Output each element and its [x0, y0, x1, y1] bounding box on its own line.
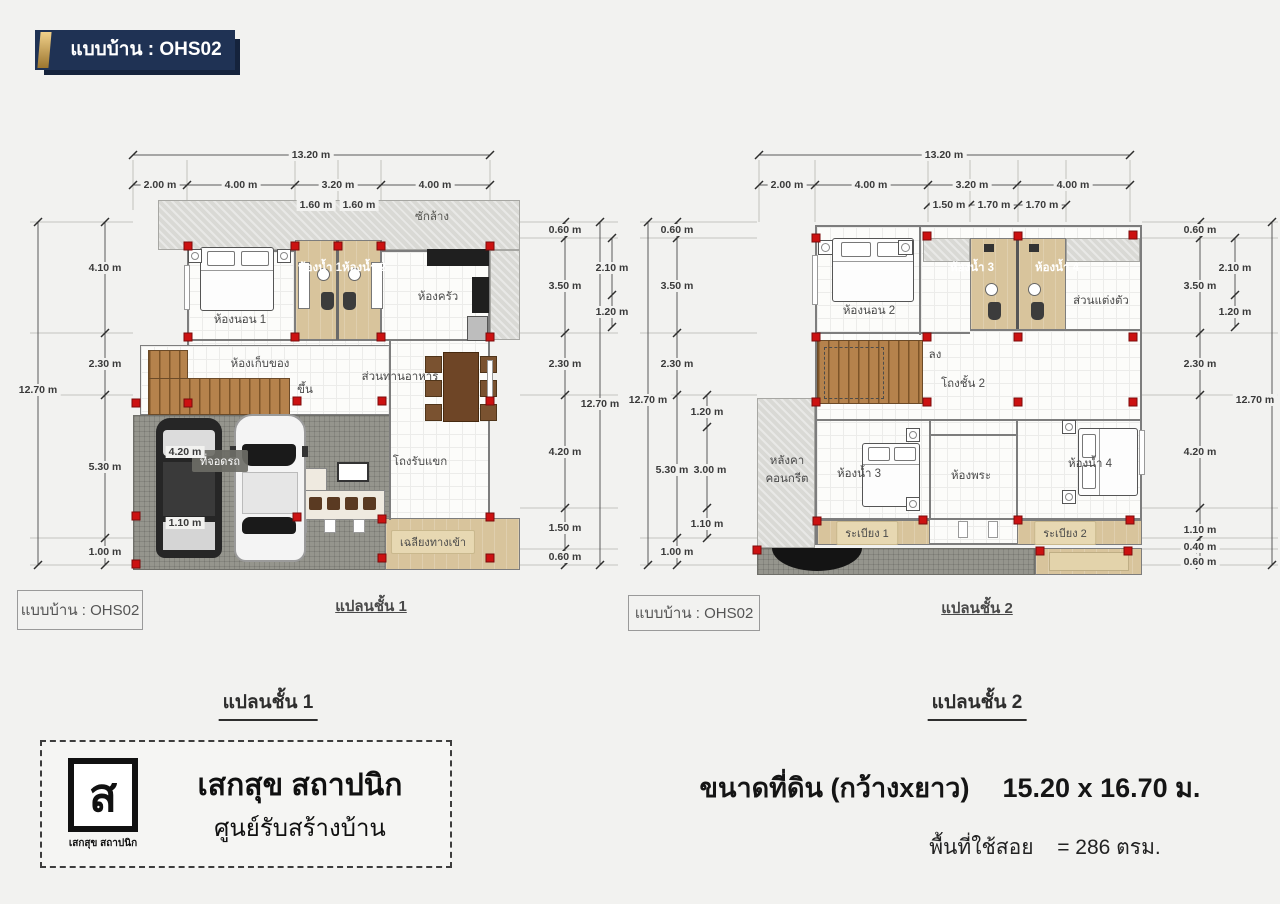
- dim-label: 2.30 m: [86, 358, 125, 370]
- dim-label: 2.10 m: [593, 262, 632, 274]
- dim-label: 1.20 m: [593, 306, 632, 318]
- dim-label: 1.60 m: [297, 199, 336, 211]
- column-marker: [378, 515, 387, 524]
- dim-label: 13.20 m: [289, 149, 334, 161]
- column-marker: [486, 333, 495, 342]
- room-label-balcony1: ระเบียง 1: [836, 521, 898, 545]
- cushion-icon: [345, 497, 358, 510]
- window: [1139, 430, 1145, 475]
- dim-label: 5.30 m: [86, 461, 125, 473]
- column-marker: [1036, 547, 1045, 556]
- kitchen-counter-icon: [472, 277, 489, 313]
- plan1-caption: แปลนชั้น 1: [219, 687, 318, 721]
- entry-step: [324, 519, 336, 533]
- nightstand-icon: [1062, 490, 1076, 504]
- column-marker: [486, 242, 495, 251]
- dim-label: 2.30 m: [1181, 358, 1220, 370]
- land-size-value: 15.20 x 16.70 ม.: [1002, 773, 1200, 803]
- column-marker: [132, 560, 141, 569]
- dim-label: 12.70 m: [626, 394, 671, 406]
- column-marker: [1014, 333, 1023, 342]
- dim-label: 13.20 m: [922, 149, 967, 161]
- page: { "header": { "badge": "แบบบ้าน : OHS02"…: [0, 0, 1280, 904]
- dim-label: 4.00 m: [222, 179, 261, 191]
- room-label-roof1: หลังคา: [770, 452, 804, 470]
- toilet-icon: [988, 302, 1001, 320]
- usable-area-label: พื้นที่ใช้สอย: [929, 836, 1033, 859]
- chair-icon: [425, 404, 442, 421]
- wall: [919, 225, 921, 335]
- column-marker: [1124, 547, 1133, 556]
- column-marker: [923, 398, 932, 407]
- room-label-bedroom1: ห้องนอน 1: [214, 311, 266, 329]
- dim-label: 1.10 m: [166, 517, 205, 529]
- room-label-stairs-down: ลง: [929, 346, 942, 364]
- dim-label: 0.60 m: [658, 224, 697, 236]
- dim-label: 4.20 m: [166, 446, 205, 458]
- column-marker: [293, 513, 302, 522]
- column-marker: [1014, 398, 1023, 407]
- tv-icon: [337, 462, 369, 482]
- dim-label: 1.70 m: [1023, 199, 1062, 211]
- column-marker: [486, 397, 495, 406]
- company-subtitle: ศูนย์รับสร้างบ้าน: [160, 808, 440, 847]
- dim-label: 4.20 m: [1181, 446, 1220, 458]
- column-marker: [291, 242, 300, 251]
- sink-icon: [985, 283, 998, 296]
- cushion-icon: [309, 497, 322, 510]
- toilet-icon: [1031, 302, 1044, 320]
- plan1-right-strip: [490, 250, 520, 340]
- dim-label: 3.50 m: [658, 280, 697, 292]
- dim-label: 3.20 m: [319, 179, 358, 191]
- nightstand-icon: [906, 497, 920, 511]
- dim-label: 1.00 m: [658, 546, 697, 558]
- car-icon: [234, 414, 306, 562]
- room-label-prayer: ห้องพระ: [951, 467, 991, 485]
- column-marker: [132, 512, 141, 521]
- room-label-bath3: ห้องน้ำ 3: [950, 259, 994, 277]
- nightstand-icon: [277, 249, 291, 263]
- room-label-storage: ห้องเก็บของ: [231, 355, 290, 373]
- plan2-sheet-label: แปลนชั้น 2: [941, 596, 1013, 620]
- chair-icon: [480, 404, 497, 421]
- column-marker: [1126, 516, 1135, 525]
- room-label-bath2: ห้องน้ำ 2: [342, 259, 386, 277]
- dim-label: 0.60 m: [1181, 556, 1220, 568]
- column-marker: [293, 397, 302, 406]
- plan2-caption: แปลนชั้น 2: [928, 687, 1027, 721]
- dim-label: 0.40 m: [1181, 541, 1220, 553]
- column-marker: [334, 242, 343, 251]
- fixture-icon: [1029, 244, 1039, 252]
- nightstand-icon: [188, 249, 202, 263]
- room-label-bath1: ห้องน้ำ 1: [298, 259, 342, 277]
- column-marker: [1014, 516, 1023, 525]
- column-marker: [1129, 398, 1138, 407]
- column-marker: [378, 554, 387, 563]
- dim-label: 2.00 m: [768, 179, 807, 191]
- dim-label: 1.10 m: [688, 518, 727, 530]
- sink-icon: [1028, 283, 1041, 296]
- column-marker: [378, 397, 387, 406]
- wall: [1016, 238, 1019, 330]
- room-label-porch: เฉลียงทางเข้า: [391, 530, 475, 554]
- dim-label: 4.20 m: [546, 446, 585, 458]
- column-marker: [812, 333, 821, 342]
- cushion-icon: [327, 497, 340, 510]
- wall: [930, 434, 1017, 436]
- dim-label: 5.30 m: [653, 464, 692, 476]
- dim-label: 4.00 m: [1054, 179, 1093, 191]
- dim-label: 1.50 m: [930, 199, 969, 211]
- dim-label: 1.10 m: [1181, 524, 1220, 536]
- column-marker: [377, 333, 386, 342]
- window: [812, 255, 818, 305]
- dim-label: 1.20 m: [688, 406, 727, 418]
- dim-label: 4.00 m: [416, 179, 455, 191]
- post: [958, 521, 968, 538]
- dim-label: 0.60 m: [546, 551, 585, 563]
- van-icon: [156, 418, 222, 558]
- nightstand-icon: [1062, 420, 1076, 434]
- land-size-line: ขนาดที่ดิน (กว้างxยาว) 15.20 x 16.70 ม.: [650, 766, 1250, 809]
- plan2-sheet-box-text: แบบบ้าน : OHS02: [635, 601, 754, 625]
- dim-label: 3.50 m: [546, 280, 585, 292]
- plan1-sheet-label: แปลนชั้น 1: [335, 594, 407, 618]
- window: [184, 265, 190, 310]
- plan1-sheet-box: แบบบ้าน : OHS02: [17, 590, 143, 630]
- dim-label: 12.70 m: [1233, 394, 1278, 406]
- wall: [336, 240, 339, 340]
- column-marker: [813, 517, 822, 526]
- dim-label: 1.20 m: [1216, 306, 1255, 318]
- title-badge: แบบบ้าน : OHS02: [35, 30, 245, 80]
- room-label-roof2: คอนกรีต: [765, 470, 808, 488]
- column-marker: [486, 554, 495, 563]
- column-marker: [1129, 333, 1138, 342]
- column-marker: [184, 242, 193, 251]
- wall: [294, 250, 296, 340]
- column-marker: [812, 234, 821, 243]
- dim-label: 1.70 m: [975, 199, 1014, 211]
- logo-small-text: เสกสุข สถาปนิก: [50, 836, 156, 851]
- bed-icon: [200, 247, 274, 311]
- column-marker: [184, 333, 193, 342]
- wall: [815, 419, 1142, 421]
- dim-label: 4.10 m: [86, 262, 125, 274]
- column-marker: [923, 232, 932, 241]
- dim-label: 3.20 m: [953, 179, 992, 191]
- column-marker: [1129, 231, 1138, 240]
- dim-label: 2.30 m: [546, 358, 585, 370]
- toilet-icon: [321, 292, 334, 310]
- company-name: เสกสุข สถาปนิก: [160, 762, 440, 809]
- dim-label: 12.70 m: [578, 398, 623, 410]
- column-marker: [184, 399, 193, 408]
- cushion-icon: [363, 497, 376, 510]
- wall: [970, 329, 1142, 331]
- dim-label: 4.00 m: [852, 179, 891, 191]
- dim-label: 1.50 m: [546, 522, 585, 534]
- entry-step: [353, 519, 365, 533]
- nightstand-icon: [898, 240, 913, 255]
- column-marker: [919, 516, 928, 525]
- room-label-balcony2: ระเบียง 2: [1034, 521, 1096, 545]
- kitchen-counter-icon: [427, 249, 489, 266]
- dim-label: 0.60 m: [546, 224, 585, 236]
- usable-area-value: = 286 ตรม.: [1057, 836, 1161, 859]
- wall: [389, 340, 391, 520]
- room-label-bedroom2: ห้องนอน 2: [843, 302, 895, 320]
- dining-table-icon: [443, 352, 479, 422]
- dim-label: 0.60 m: [1181, 224, 1220, 236]
- room-label-laundry: ซักล้าง: [415, 208, 449, 226]
- plan1-sheet-box-text: แบบบ้าน : OHS02: [21, 598, 140, 622]
- dim-label: 3.00 m: [691, 464, 730, 476]
- dim-label: 2.30 m: [658, 358, 697, 370]
- company-logo: ส: [68, 758, 138, 832]
- room-label-living: โถงรับแขก: [393, 453, 447, 471]
- room-label-bedroom4: ห้องน้ำ 4: [1068, 455, 1112, 473]
- usable-area-line: พื้นที่ใช้สอย = 286 ตรม.: [850, 831, 1240, 864]
- toilet-icon: [343, 292, 356, 310]
- column-marker: [923, 333, 932, 342]
- fixture-icon: [984, 244, 994, 252]
- column-marker: [812, 398, 821, 407]
- plan2-sheet-box: แบบบ้าน : OHS02: [628, 595, 760, 631]
- dim-label: 2.10 m: [1216, 262, 1255, 274]
- dim-label: 12.70 m: [16, 384, 61, 396]
- column-marker: [486, 513, 495, 522]
- room-label-bedroom3: ห้องน้ำ 3: [837, 465, 881, 483]
- footer-logo-box: ส เสกสุข สถาปนิก เสกสุข สถาปนิก ศูนย์รับ…: [40, 740, 452, 868]
- dim-label: 3.50 m: [1181, 280, 1220, 292]
- column-marker: [1014, 232, 1023, 241]
- column-marker: [753, 546, 762, 555]
- wall: [815, 332, 970, 334]
- dim-label: 1.00 m: [86, 546, 125, 558]
- column-marker: [132, 399, 141, 408]
- room-label-kitchen: ห้องครัว: [418, 288, 458, 306]
- room-label-dressing: ส่วนแต่งตัว: [1073, 292, 1129, 310]
- logo-glyph: ส: [89, 772, 117, 818]
- stairs-plan1: [148, 378, 290, 415]
- column-marker: [377, 242, 386, 251]
- nightstand-icon: [906, 428, 920, 442]
- title-badge-text: แบบบ้าน : OHS02: [57, 30, 235, 70]
- room-label-hall: โถงชั้น 2: [941, 375, 985, 393]
- room-label-dining: ส่วนทานอาหาร: [362, 368, 439, 386]
- column-marker: [291, 333, 300, 342]
- room-label-bath4: ห้องน้ำ 4: [1035, 259, 1079, 277]
- stairs-plan1: [148, 350, 188, 380]
- dim-label: 2.00 m: [141, 179, 180, 191]
- stairs-path: [824, 347, 884, 399]
- land-size-label: ขนาดที่ดิน (กว้างxยาว): [700, 773, 970, 803]
- post: [988, 521, 998, 538]
- dim-label: 1.60 m: [340, 199, 379, 211]
